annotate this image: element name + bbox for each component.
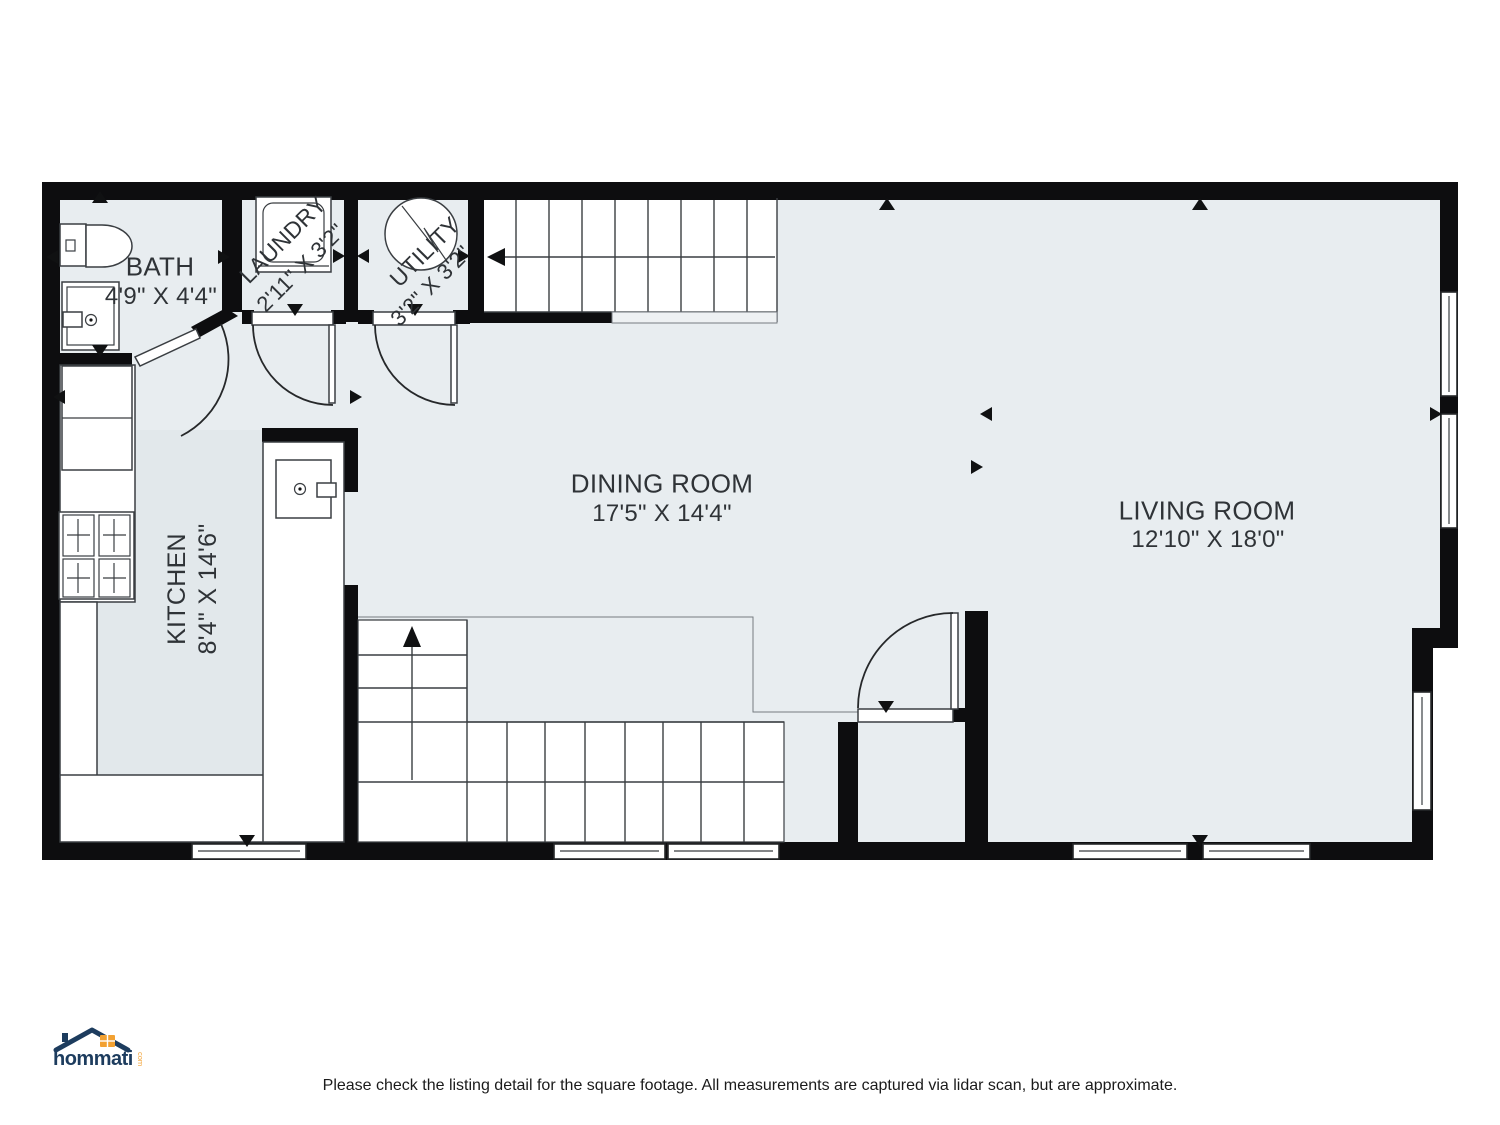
logo-text: hommati [53,1048,133,1070]
kitchen-label-block: KITCHEN 8'4" X 14'6" [162,524,224,655]
kitchen-dims: 8'4" X 14'6" [193,524,224,655]
bath-dims: 4'9" X 4'4" [105,283,217,311]
staircase-upper [484,198,777,323]
living-room-dims: 12'10" X 18'0" [1131,526,1284,554]
window-right-lower [1413,692,1431,810]
refrigerator-icon [62,366,132,470]
floor-plan-page: BATH 4'9" X 4'4" LAUNDRY 2'11" X 3'2" UT… [0,0,1500,1125]
hommati-logo: hommati com [50,1024,150,1072]
toilet-icon [60,224,132,267]
floor-plan-drawing [0,0,1500,1125]
disclaimer-text: Please check the listing detail for the … [0,1077,1500,1095]
living-room-label: LIVING ROOM [1119,496,1296,527]
kitchen-sink-icon [276,460,336,518]
dining-room-dims: 17'5" X 14'4" [592,500,732,528]
window-kitchen [192,844,306,859]
stove-icon [59,512,134,599]
logo-house-icon [56,1030,128,1050]
kitchen-label: KITCHEN [162,524,193,655]
dining-room-label: DINING ROOM [571,469,753,500]
logo-suffix: com [136,1052,145,1066]
bath-label: BATH [126,252,195,283]
